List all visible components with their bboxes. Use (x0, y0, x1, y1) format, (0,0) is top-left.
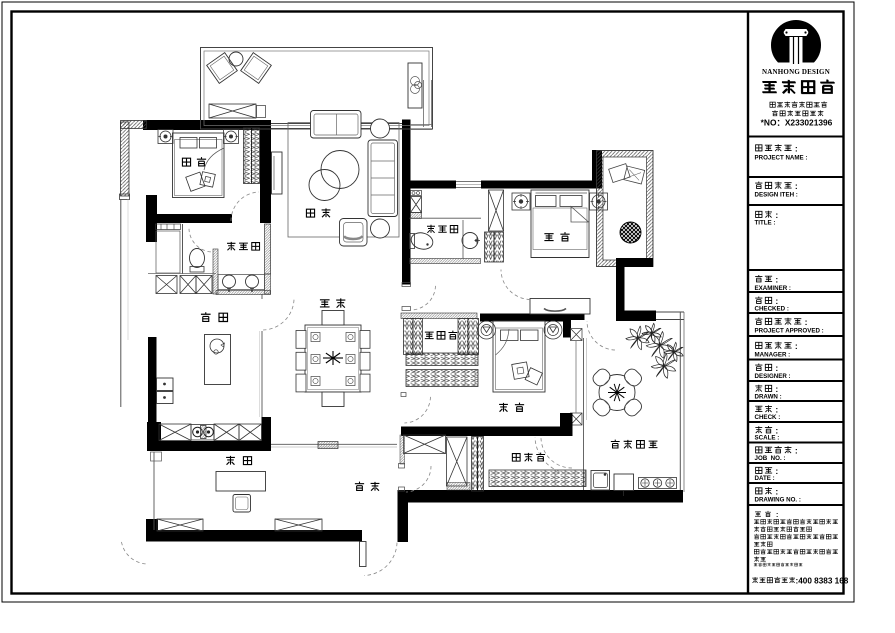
svg-text::: : (776, 512, 778, 519)
svg-text:CHECKED :: CHECKED : (755, 306, 789, 313)
svg-text::: : (775, 275, 778, 285)
svg-text:DRAWING NO. :: DRAWING NO. : (755, 497, 801, 504)
svg-text::: : (775, 210, 778, 220)
svg-text:*NO：X233021396: *NO：X233021396 (761, 118, 833, 128)
svg-text:PROJECT NAME :: PROJECT NAME : (755, 155, 808, 162)
svg-text::: : (795, 446, 798, 456)
svg-text:PROJECT APPROVED :: PROJECT APPROVED : (755, 328, 824, 335)
svg-text:NANHONG DESIGN: NANHONG DESIGN (762, 68, 830, 76)
svg-text::: : (805, 317, 808, 327)
svg-text:EXAMINER :: EXAMINER : (755, 285, 791, 292)
svg-text:DATE :: DATE : (755, 475, 775, 482)
svg-text:TITLE :: TITLE : (755, 220, 776, 227)
svg-text:SCALE :: SCALE : (755, 435, 780, 442)
svg-text::: : (775, 487, 778, 497)
svg-text:MANAGER :: MANAGER : (755, 352, 791, 359)
svg-text:CHECK :: CHECK : (755, 414, 781, 421)
svg-text::: : (775, 466, 778, 476)
svg-text:DESIGN ITEH :: DESIGN ITEH : (755, 192, 798, 199)
svg-text:DRAWN :: DRAWN : (755, 394, 782, 401)
svg-text:DESIGNER :: DESIGNER : (755, 373, 791, 380)
svg-text::: : (795, 144, 798, 154)
svg-text:JOB NO. :: JOB NO. : (755, 455, 786, 462)
svg-text::: : (795, 341, 798, 351)
svg-text::400 8383 168: :400 8383 168 (796, 577, 849, 586)
svg-text::: : (795, 181, 798, 191)
svg-text::: : (775, 363, 778, 373)
